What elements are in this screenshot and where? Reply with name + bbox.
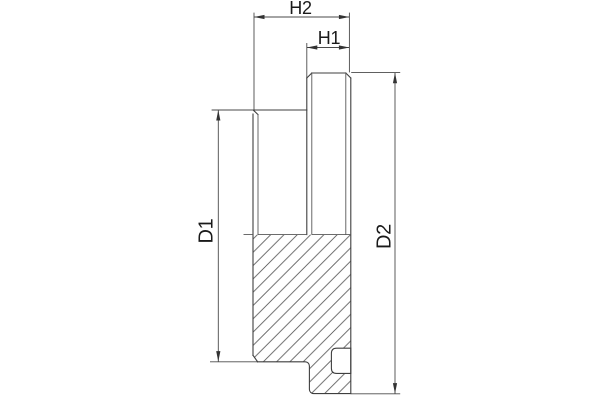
cylinder-top-right-chamfer	[346, 73, 351, 78]
d2-arrowhead-top	[393, 73, 397, 84]
d1-arrowhead-top	[216, 110, 220, 121]
seal-groove	[331, 348, 350, 373]
dimension-h1: H1	[307, 28, 350, 77]
h2-label: H2	[289, 0, 312, 18]
flange-top-chamfer	[254, 110, 259, 114]
cylinder-top-left-chamfer	[307, 73, 312, 78]
dimension-d2: D2	[351, 73, 400, 394]
h1-arrowhead-left	[307, 45, 318, 49]
d2-label: D2	[374, 224, 396, 249]
d1-label: D1	[196, 218, 218, 243]
d2-arrowhead-bottom	[393, 383, 397, 394]
groove-outline	[331, 348, 350, 373]
h2-arrowhead-right	[339, 15, 350, 19]
dimension-d1: D1	[196, 110, 258, 362]
h2-arrowhead-left	[254, 15, 265, 19]
drawing-svg: H2 H1 D1 D2	[0, 0, 600, 400]
technical-drawing-canvas: H2 H1 D1 D2	[0, 0, 600, 400]
h1-arrowhead-right	[339, 45, 350, 49]
d1-arrowhead-bottom	[216, 351, 220, 362]
dimension-h2: H2	[254, 0, 349, 110]
h1-label: H1	[318, 28, 341, 48]
